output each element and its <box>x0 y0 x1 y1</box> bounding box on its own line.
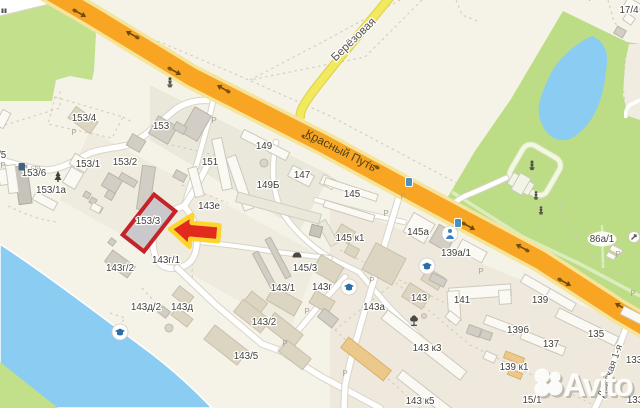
svg-text:17/4: 17/4 <box>619 5 639 16</box>
svg-text:153/2: 153/2 <box>113 157 138 168</box>
svg-text:143г/1: 143г/1 <box>152 255 180 266</box>
svg-text:Р: Р <box>369 276 374 285</box>
svg-text:135: 135 <box>588 329 605 340</box>
svg-text:133: 133 <box>626 355 640 366</box>
svg-text:139а/1: 139а/1 <box>441 248 471 259</box>
svg-text:145: 145 <box>344 189 361 200</box>
svg-text:Р: Р <box>282 339 287 348</box>
svg-text:139б: 139б <box>507 325 529 336</box>
svg-text:Р: Р <box>0 161 5 170</box>
svg-text:139 к1: 139 к1 <box>500 362 529 373</box>
svg-text:СТО: СТО <box>31 165 41 170</box>
svg-text:145а: 145а <box>407 227 429 238</box>
svg-text:153: 153 <box>153 121 170 132</box>
svg-text:Р: Р <box>383 209 388 218</box>
svg-text:145/3: 145/3 <box>293 263 318 274</box>
svg-text:Р: Р <box>342 369 347 378</box>
svg-text:143: 143 <box>411 293 428 304</box>
svg-text:149Б: 149Б <box>257 180 280 191</box>
svg-text:153/1а: 153/1а <box>36 185 67 196</box>
svg-text:Р: Р <box>400 192 405 201</box>
svg-text:143/2: 143/2 <box>252 317 277 328</box>
svg-text:Р: Р <box>211 116 216 125</box>
svg-text:153/4: 153/4 <box>72 113 97 124</box>
svg-text:141: 141 <box>454 295 470 306</box>
svg-text:Р: Р <box>304 307 309 316</box>
svg-text:Р: Р <box>630 289 635 298</box>
svg-text:139: 139 <box>532 295 548 306</box>
svg-text:143а: 143а <box>363 302 385 313</box>
svg-text:137: 137 <box>543 339 559 350</box>
svg-text:153/5: 153/5 <box>0 150 7 161</box>
svg-text:145 к1: 145 к1 <box>336 233 365 244</box>
svg-text:143/5: 143/5 <box>234 351 259 362</box>
svg-text:15/1: 15/1 <box>522 395 541 406</box>
svg-text:143г/2: 143г/2 <box>106 263 134 274</box>
svg-text:143д: 143д <box>171 302 193 313</box>
svg-text:Р: Р <box>71 128 76 137</box>
svg-text:Avito: Avito <box>563 367 633 403</box>
svg-text:143д/2: 143д/2 <box>131 302 161 313</box>
svg-text:153/3: 153/3 <box>136 216 161 227</box>
svg-text:143 к3: 143 к3 <box>413 343 442 354</box>
svg-text:143г: 143г <box>312 282 332 293</box>
svg-text:143 к5: 143 к5 <box>406 396 435 407</box>
svg-text:143е: 143е <box>198 201 220 212</box>
svg-text:143/1: 143/1 <box>271 283 296 294</box>
svg-text:151: 151 <box>202 157 218 168</box>
svg-text:147: 147 <box>294 170 310 181</box>
svg-text:149: 149 <box>256 141 272 152</box>
svg-text:86а/1: 86а/1 <box>590 234 615 245</box>
svg-text:Р: Р <box>478 267 483 276</box>
svg-text:153/1: 153/1 <box>76 159 101 170</box>
svg-text:Р: Р <box>588 0 593 3</box>
svg-text:Р: Р <box>615 250 620 259</box>
